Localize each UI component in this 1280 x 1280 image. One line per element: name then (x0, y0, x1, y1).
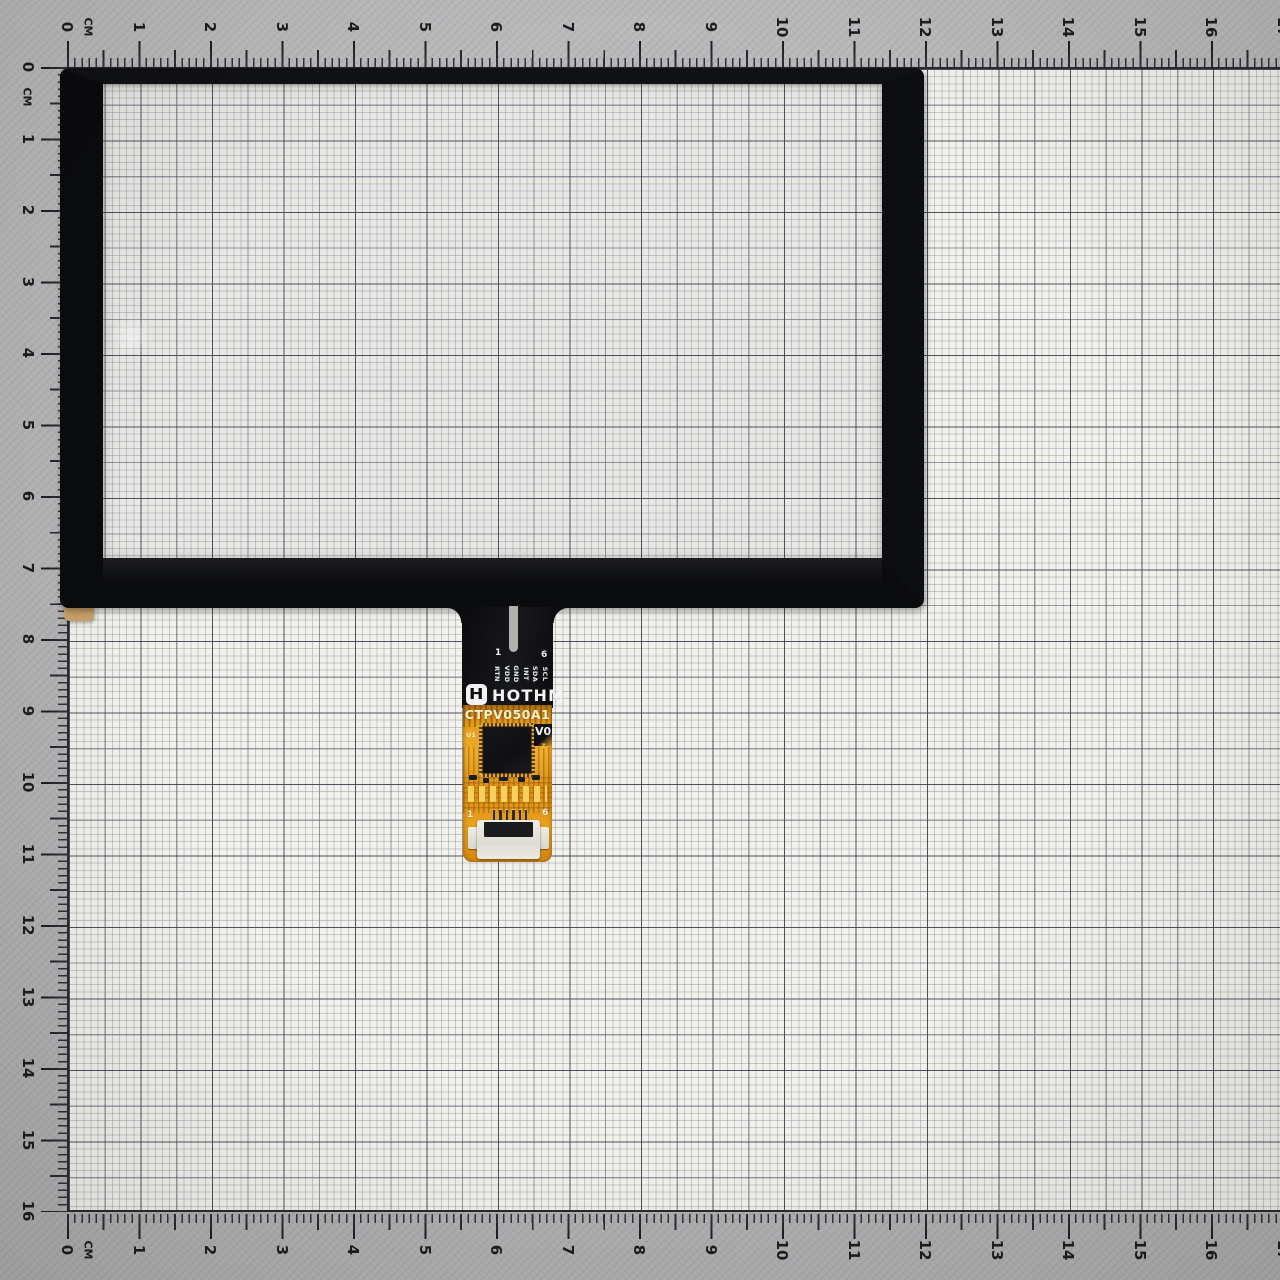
chip-reference-designator: U1 (466, 731, 476, 739)
ruler-number: 5 (416, 1245, 434, 1255)
ruler-number: 6 (487, 1245, 505, 1255)
ruler-number: 10 (773, 17, 791, 38)
flex-pin-label: GND (512, 665, 520, 682)
ruler-number: 0 (19, 62, 37, 72)
ruler-number: 16 (1202, 1240, 1220, 1261)
ruler-number: 7 (19, 562, 37, 572)
ruler-number: 1 (130, 1245, 148, 1255)
tail-alignment-slot (509, 606, 518, 652)
ruler-number: 12 (916, 17, 934, 38)
ruler-number: 16 (1202, 17, 1220, 38)
ruler-number: 2 (19, 205, 37, 215)
ruler-ticks-bottom-mm (67, 1214, 1280, 1223)
model-number: CTPV050A1 (463, 707, 552, 722)
tail-fillet-right (553, 607, 569, 623)
flex-pin-label: INT (522, 667, 530, 681)
ruler-number: 7 (559, 22, 577, 32)
ruler-number: 5 (19, 419, 37, 429)
ruler-number: 4 (19, 348, 37, 358)
product-photo-touch-panel-on-grid-paper: CM CM CM 0011223344556677889910101111121… (0, 0, 1280, 1280)
ruler-number: 13 (988, 17, 1006, 38)
brand-name: HOTHM (492, 686, 565, 705)
flex-pin-label: SCL (541, 667, 549, 682)
ruler-ticks-top-mm (67, 58, 1280, 67)
ruler-number: 10 (773, 1240, 791, 1261)
ruler-number: 9 (702, 1245, 720, 1255)
version-label: V0 (535, 725, 551, 738)
ruler-number: 14 (1059, 1240, 1077, 1261)
flex-gold-pads-row (468, 786, 547, 802)
ruler-number: 4 (344, 22, 362, 32)
ruler-number: 1 (130, 22, 148, 32)
ruler-number: 3 (273, 1245, 291, 1255)
ruler-number: 15 (19, 1129, 37, 1150)
pin-number-1-top: 1 (495, 648, 501, 658)
ruler-ticks-top-cm (67, 41, 1280, 67)
smd-component (469, 775, 477, 780)
ruler-number: 2 (201, 22, 219, 32)
touch-controller-chip (483, 727, 531, 773)
ruler-number: 13 (19, 986, 37, 1007)
ruler-number: 11 (19, 843, 37, 864)
ruler-number: 5 (416, 22, 434, 32)
ruler-number: 8 (630, 22, 648, 32)
ruler-number: 3 (273, 22, 291, 32)
ruler-number: 2 (201, 1245, 219, 1255)
ruler-number: 15 (1131, 1240, 1149, 1261)
ruler-number: 12 (19, 915, 37, 936)
ruler-number: 6 (19, 491, 37, 501)
ruler-number: 11 (845, 1240, 863, 1261)
ruler-number: 8 (19, 634, 37, 644)
brand-logo-glyph: H (469, 687, 483, 702)
touch-panel-glass-window (103, 84, 882, 558)
tail-fillet-left (446, 607, 462, 623)
ruler-number: 17 (1274, 1240, 1280, 1261)
pin-labels-row: RTNVDDGNDINTSDASCL (490, 662, 554, 686)
smd-component (483, 778, 489, 783)
ruler-number: 12 (916, 1240, 934, 1261)
smd-component (518, 777, 525, 782)
flex-pin-label: VDD (503, 665, 511, 682)
ruler-number: 14 (1059, 17, 1077, 38)
ruler-number: 0 (58, 22, 76, 32)
ruler-number: 10 (19, 772, 37, 793)
ruler-number: 13 (988, 1240, 1006, 1261)
brand-logo-icon: H (466, 684, 487, 705)
smd-component (532, 775, 540, 780)
connector-ear-right (539, 827, 549, 849)
zif-connector-body (477, 820, 540, 859)
chip-pins-bottom (481, 773, 533, 777)
ruler-unit-label-bottom: CM (82, 1240, 95, 1259)
ruler-ticks-bottom-5mm (67, 1214, 1280, 1230)
ruler-number: 4 (344, 1245, 362, 1255)
ruler-number: 6 (487, 22, 505, 32)
ruler-number: 9 (19, 705, 37, 715)
connector-pin-number-1: 1 (467, 810, 473, 820)
ruler-number: 16 (19, 1201, 37, 1222)
pin-number-6-top: 6 (541, 650, 547, 660)
ruler-unit-label-top: CM (82, 17, 95, 36)
ruler-number: 11 (845, 17, 863, 38)
ruler-ticks-bottom-cm (67, 1214, 1280, 1239)
ruler-number: 3 (19, 276, 37, 286)
flex-pin-label: SDA (531, 666, 539, 682)
version-sub-label: z (541, 741, 546, 750)
bezel-gloss-highlight (103, 558, 882, 608)
ruler-ticks-top-5mm (67, 50, 1280, 67)
connector-pin-number-6: 6 (542, 808, 548, 818)
ruler-number: 7 (559, 1245, 577, 1255)
ruler-number: 1 (19, 133, 37, 143)
ruler-number: 9 (702, 22, 720, 32)
flex-pin-label: RTN (493, 666, 501, 682)
zif-connector-slot (484, 822, 533, 837)
ruler-number: 0 (58, 1245, 76, 1255)
ruler-number: 17 (1274, 17, 1280, 38)
ruler-unit-label-left: CM (21, 87, 34, 106)
ruler-number: 15 (1131, 17, 1149, 38)
ruler-number: 14 (19, 1058, 37, 1079)
ruler-number: 8 (630, 1245, 648, 1255)
